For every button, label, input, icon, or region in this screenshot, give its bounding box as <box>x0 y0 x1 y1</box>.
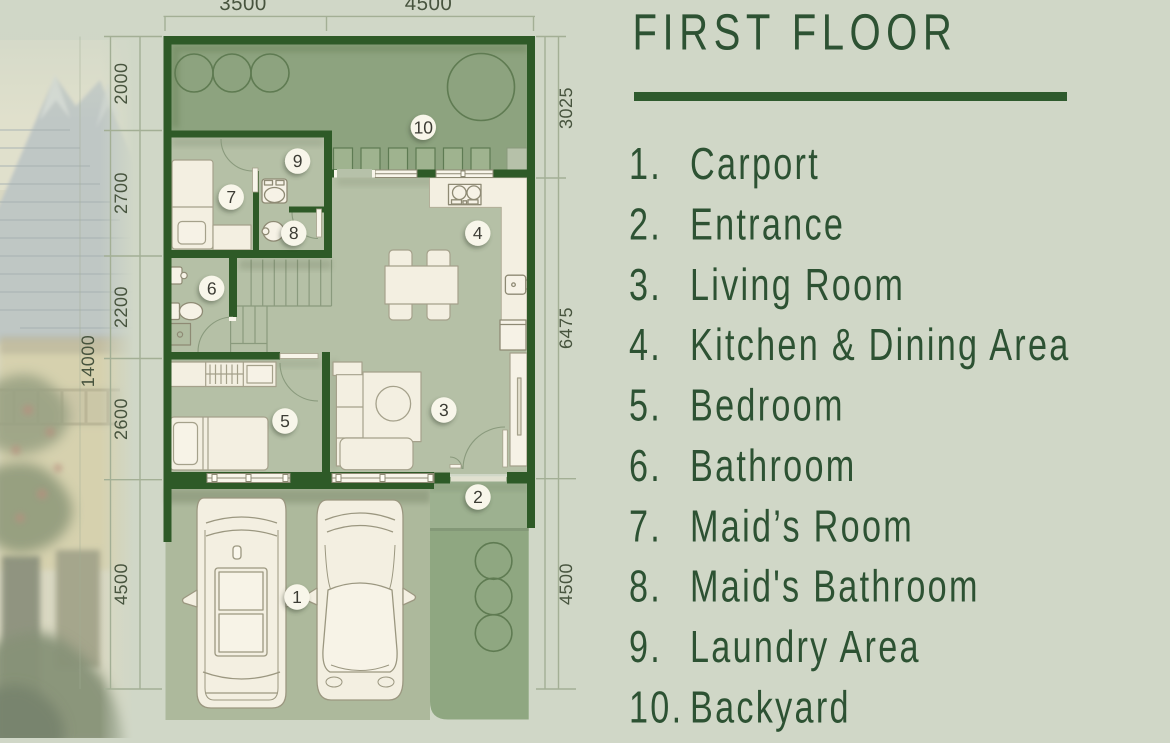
svg-text:4.: 4. <box>629 319 662 370</box>
svg-text:Bedroom: Bedroom <box>690 380 845 431</box>
svg-text:9.: 9. <box>629 621 662 672</box>
svg-text:5: 5 <box>280 411 290 431</box>
svg-text:6475: 6475 <box>556 307 576 349</box>
svg-text:6.: 6. <box>629 440 662 491</box>
svg-text:Backyard: Backyard <box>690 681 851 732</box>
svg-text:9: 9 <box>293 151 303 171</box>
svg-text:2000: 2000 <box>111 62 131 104</box>
svg-text:8: 8 <box>289 223 299 243</box>
svg-text:Living Room: Living Room <box>690 259 905 310</box>
svg-text:3: 3 <box>439 400 449 420</box>
svg-text:Maid's Bathroom: Maid's Bathroom <box>690 561 980 612</box>
svg-text:FIRST FLOOR: FIRST FLOOR <box>633 3 958 60</box>
svg-text:4: 4 <box>473 223 483 243</box>
svg-text:2200: 2200 <box>111 286 131 328</box>
svg-text:3.: 3. <box>629 259 662 310</box>
svg-text:5.: 5. <box>629 380 662 431</box>
svg-text:1: 1 <box>292 587 302 607</box>
svg-text:Carport: Carport <box>690 138 820 189</box>
svg-text:7.: 7. <box>629 500 662 551</box>
svg-text:4500: 4500 <box>405 0 453 15</box>
svg-text:10: 10 <box>414 117 434 137</box>
svg-text:Kitchen & Dining Area: Kitchen & Dining Area <box>690 319 1071 370</box>
svg-text:Laundry Area: Laundry Area <box>690 621 921 672</box>
svg-text:2.: 2. <box>629 199 662 250</box>
svg-text:2700: 2700 <box>111 172 131 214</box>
svg-text:Bathroom: Bathroom <box>690 440 857 491</box>
svg-text:3500: 3500 <box>219 0 267 15</box>
svg-text:1.: 1. <box>629 138 662 189</box>
svg-text:Entrance: Entrance <box>690 199 845 250</box>
svg-text:4500: 4500 <box>111 563 131 605</box>
svg-text:6: 6 <box>207 278 217 298</box>
svg-text:4500: 4500 <box>556 563 576 605</box>
svg-text:14000: 14000 <box>78 335 98 388</box>
svg-text:2600: 2600 <box>111 398 131 440</box>
svg-text:10.: 10. <box>629 681 683 732</box>
svg-text:2: 2 <box>473 487 483 507</box>
svg-text:Maid’s Room: Maid’s Room <box>690 500 914 551</box>
svg-text:7: 7 <box>226 187 236 207</box>
svg-text:8.: 8. <box>629 561 662 612</box>
svg-text:3025: 3025 <box>556 87 576 129</box>
